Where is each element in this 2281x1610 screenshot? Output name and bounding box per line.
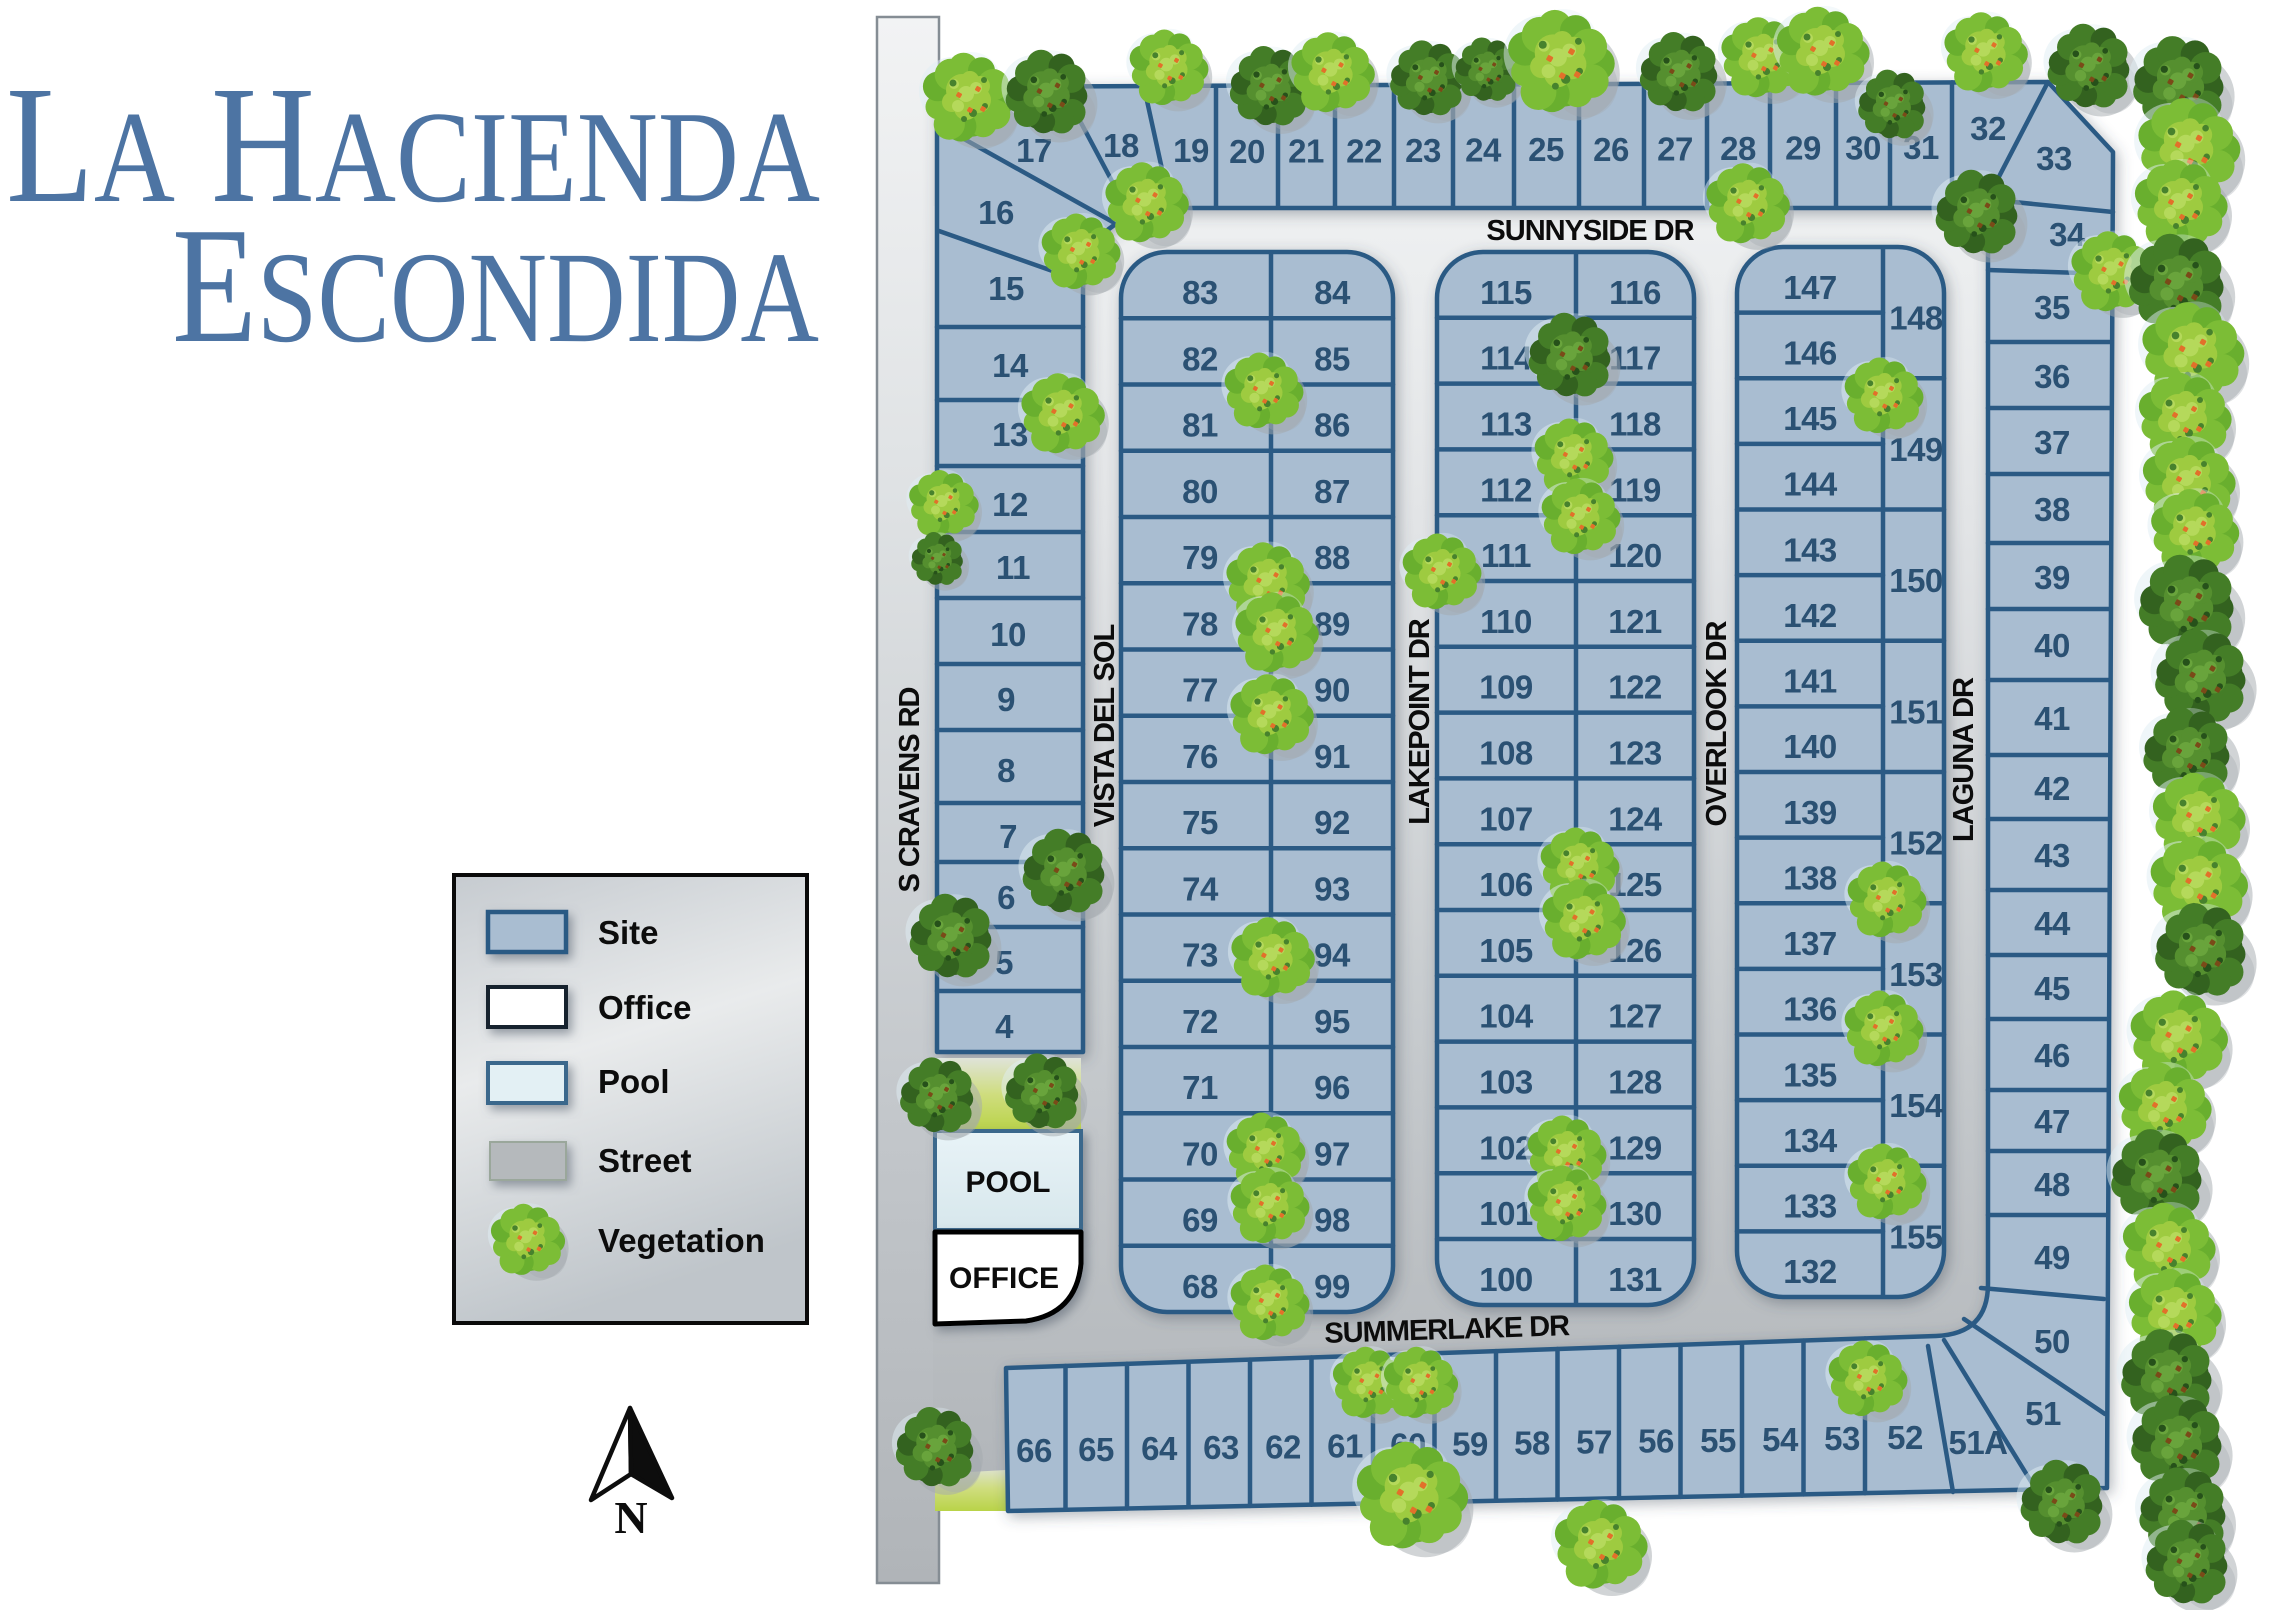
svg-text:123: 123 bbox=[1608, 735, 1662, 772]
svg-text:97: 97 bbox=[1314, 1135, 1350, 1172]
svg-text:54: 54 bbox=[1762, 1421, 1799, 1458]
svg-text:148: 148 bbox=[1889, 300, 1943, 337]
svg-text:S CRAVENS RD: S CRAVENS RD bbox=[894, 687, 926, 892]
svg-text:83: 83 bbox=[1182, 274, 1218, 311]
svg-text:141: 141 bbox=[1783, 663, 1837, 700]
svg-text:106: 106 bbox=[1479, 866, 1533, 903]
svg-text:115: 115 bbox=[1480, 274, 1532, 311]
svg-text:Pool: Pool bbox=[598, 1063, 670, 1100]
svg-text:82: 82 bbox=[1182, 340, 1218, 377]
svg-text:116: 116 bbox=[1609, 274, 1661, 311]
svg-text:80: 80 bbox=[1182, 473, 1218, 510]
svg-text:64: 64 bbox=[1141, 1430, 1178, 1467]
svg-text:38: 38 bbox=[2034, 491, 2070, 528]
svg-text:150: 150 bbox=[1889, 562, 1943, 599]
svg-text:22: 22 bbox=[1346, 132, 1382, 169]
svg-text:154: 154 bbox=[1889, 1087, 1944, 1124]
svg-text:Street: Street bbox=[598, 1142, 692, 1179]
svg-text:95: 95 bbox=[1314, 1003, 1350, 1040]
svg-text:42: 42 bbox=[2034, 770, 2070, 807]
svg-text:50: 50 bbox=[2034, 1323, 2070, 1360]
svg-text:140: 140 bbox=[1783, 728, 1837, 765]
svg-text:104: 104 bbox=[1479, 998, 1534, 1035]
svg-text:100: 100 bbox=[1479, 1261, 1533, 1298]
svg-text:143: 143 bbox=[1783, 531, 1837, 568]
svg-text:29: 29 bbox=[1785, 130, 1821, 167]
svg-text:58: 58 bbox=[1514, 1425, 1550, 1462]
svg-text:124: 124 bbox=[1608, 800, 1663, 837]
svg-text:113: 113 bbox=[1480, 406, 1532, 443]
svg-text:23: 23 bbox=[1405, 132, 1441, 169]
svg-text:N: N bbox=[614, 1492, 647, 1543]
svg-text:OVERLOOK DR: OVERLOOK DR bbox=[1701, 620, 1733, 826]
svg-text:4: 4 bbox=[995, 1008, 1014, 1045]
svg-text:47: 47 bbox=[2034, 1103, 2070, 1140]
svg-text:112: 112 bbox=[1480, 471, 1532, 508]
svg-text:25: 25 bbox=[1528, 131, 1564, 168]
svg-text:136: 136 bbox=[1783, 991, 1837, 1028]
svg-text:LAKEPOINT DR: LAKEPOINT DR bbox=[1404, 618, 1436, 825]
svg-text:70: 70 bbox=[1182, 1135, 1218, 1172]
svg-text:133: 133 bbox=[1783, 1188, 1837, 1225]
svg-text:128: 128 bbox=[1608, 1064, 1662, 1101]
svg-text:87: 87 bbox=[1314, 473, 1350, 510]
svg-text:91: 91 bbox=[1314, 738, 1350, 775]
svg-text:41: 41 bbox=[2034, 700, 2070, 737]
svg-text:51A: 51A bbox=[1948, 1424, 2007, 1461]
svg-text:19: 19 bbox=[1173, 132, 1209, 169]
svg-text:24: 24 bbox=[1465, 132, 1502, 169]
svg-text:134: 134 bbox=[1783, 1122, 1838, 1159]
svg-text:111: 111 bbox=[1481, 537, 1531, 574]
svg-text:85: 85 bbox=[1314, 340, 1350, 377]
svg-text:57: 57 bbox=[1576, 1424, 1612, 1461]
svg-text:153: 153 bbox=[1889, 956, 1943, 993]
svg-text:46: 46 bbox=[2034, 1037, 2070, 1074]
svg-text:119: 119 bbox=[1609, 471, 1661, 508]
svg-text:7: 7 bbox=[999, 818, 1017, 855]
svg-text:POOL: POOL bbox=[965, 1166, 1050, 1199]
svg-text:77: 77 bbox=[1182, 672, 1218, 709]
svg-text:36: 36 bbox=[2034, 358, 2070, 395]
svg-text:75: 75 bbox=[1182, 804, 1218, 841]
svg-text:79: 79 bbox=[1182, 539, 1218, 576]
svg-text:147: 147 bbox=[1783, 269, 1837, 306]
svg-text:33: 33 bbox=[2036, 140, 2072, 177]
svg-text:26: 26 bbox=[1593, 131, 1629, 168]
svg-text:43: 43 bbox=[2034, 837, 2070, 874]
svg-text:LAGUNA DR: LAGUNA DR bbox=[1948, 677, 1980, 842]
svg-text:68: 68 bbox=[1182, 1268, 1218, 1305]
svg-text:32: 32 bbox=[1970, 110, 2006, 147]
svg-text:49: 49 bbox=[2034, 1239, 2070, 1276]
svg-text:61: 61 bbox=[1327, 1427, 1363, 1464]
svg-text:14: 14 bbox=[992, 347, 1029, 384]
svg-text:39: 39 bbox=[2034, 559, 2070, 596]
svg-text:151: 151 bbox=[1889, 693, 1943, 730]
svg-text:90: 90 bbox=[1314, 672, 1350, 709]
svg-text:96: 96 bbox=[1314, 1069, 1350, 1106]
svg-text:86: 86 bbox=[1314, 407, 1350, 444]
svg-text:51: 51 bbox=[2025, 1395, 2061, 1432]
svg-text:37: 37 bbox=[2034, 424, 2070, 461]
svg-text:130: 130 bbox=[1608, 1195, 1662, 1232]
svg-text:8: 8 bbox=[997, 752, 1015, 789]
svg-text:66: 66 bbox=[1016, 1432, 1052, 1469]
svg-text:145: 145 bbox=[1783, 400, 1837, 437]
svg-text:52: 52 bbox=[1887, 1419, 1923, 1456]
svg-text:122: 122 bbox=[1608, 669, 1662, 706]
svg-text:63: 63 bbox=[1203, 1429, 1239, 1466]
svg-text:73: 73 bbox=[1182, 937, 1218, 974]
svg-text:11: 11 bbox=[996, 549, 1030, 586]
svg-text:69: 69 bbox=[1182, 1202, 1218, 1239]
svg-text:144: 144 bbox=[1783, 466, 1838, 503]
svg-text:118: 118 bbox=[1609, 406, 1661, 443]
svg-text:16: 16 bbox=[978, 194, 1014, 231]
svg-text:9: 9 bbox=[997, 681, 1015, 718]
svg-text:30: 30 bbox=[1845, 129, 1881, 166]
svg-text:127: 127 bbox=[1608, 998, 1662, 1035]
svg-text:15: 15 bbox=[988, 270, 1024, 307]
svg-text:18: 18 bbox=[1103, 127, 1139, 164]
svg-text:OFFICE: OFFICE bbox=[949, 1262, 1059, 1295]
svg-text:131: 131 bbox=[1608, 1261, 1662, 1298]
svg-text:40: 40 bbox=[2034, 627, 2070, 664]
svg-text:110: 110 bbox=[1480, 603, 1532, 640]
svg-text:35: 35 bbox=[2034, 289, 2070, 326]
svg-text:146: 146 bbox=[1783, 334, 1837, 371]
svg-text:Vegetation: Vegetation bbox=[598, 1222, 765, 1259]
svg-text:105: 105 bbox=[1479, 932, 1533, 969]
svg-text:93: 93 bbox=[1314, 870, 1350, 907]
svg-text:138: 138 bbox=[1783, 859, 1837, 896]
svg-text:152: 152 bbox=[1889, 825, 1943, 862]
svg-text:71: 71 bbox=[1182, 1069, 1218, 1106]
svg-text:78: 78 bbox=[1182, 605, 1218, 642]
svg-text:10: 10 bbox=[990, 616, 1026, 653]
svg-text:121: 121 bbox=[1608, 603, 1662, 640]
svg-text:107: 107 bbox=[1479, 800, 1533, 837]
svg-text:21: 21 bbox=[1288, 133, 1324, 170]
svg-text:Site: Site bbox=[598, 914, 659, 951]
svg-text:Office: Office bbox=[598, 989, 692, 1026]
svg-text:103: 103 bbox=[1479, 1064, 1533, 1101]
svg-text:74: 74 bbox=[1182, 870, 1219, 907]
svg-text:81: 81 bbox=[1182, 407, 1218, 444]
svg-text:VISTA DEL SOL: VISTA DEL SOL bbox=[1089, 625, 1121, 828]
svg-text:84: 84 bbox=[1314, 274, 1351, 311]
svg-text:135: 135 bbox=[1783, 1056, 1837, 1093]
svg-text:98: 98 bbox=[1314, 1202, 1350, 1239]
svg-text:12: 12 bbox=[992, 486, 1028, 523]
svg-text:132: 132 bbox=[1783, 1253, 1837, 1290]
svg-text:53: 53 bbox=[1824, 1420, 1860, 1457]
svg-text:108: 108 bbox=[1479, 735, 1533, 772]
svg-text:48: 48 bbox=[2034, 1166, 2070, 1203]
svg-text:SUNNYSIDE DR: SUNNYSIDE DR bbox=[1486, 215, 1694, 247]
svg-text:142: 142 bbox=[1783, 597, 1837, 634]
svg-text:20: 20 bbox=[1229, 133, 1265, 170]
svg-text:109: 109 bbox=[1479, 669, 1533, 706]
svg-text:99: 99 bbox=[1314, 1268, 1350, 1305]
svg-text:56: 56 bbox=[1638, 1423, 1674, 1460]
svg-text:76: 76 bbox=[1182, 738, 1218, 775]
svg-text:55: 55 bbox=[1700, 1422, 1736, 1459]
svg-text:65: 65 bbox=[1078, 1431, 1114, 1468]
svg-text:44: 44 bbox=[2034, 905, 2071, 942]
svg-text:59: 59 bbox=[1452, 1426, 1488, 1463]
svg-text:27: 27 bbox=[1657, 130, 1693, 167]
svg-text:137: 137 bbox=[1783, 925, 1837, 962]
svg-text:139: 139 bbox=[1783, 794, 1837, 831]
svg-text:28: 28 bbox=[1720, 130, 1756, 167]
svg-text:94: 94 bbox=[1314, 937, 1351, 974]
svg-text:88: 88 bbox=[1314, 539, 1350, 576]
svg-text:92: 92 bbox=[1314, 804, 1350, 841]
svg-text:45: 45 bbox=[2034, 970, 2070, 1007]
svg-text:6: 6 bbox=[997, 879, 1015, 916]
svg-text:72: 72 bbox=[1182, 1003, 1218, 1040]
svg-text:62: 62 bbox=[1265, 1428, 1301, 1465]
svg-text:129: 129 bbox=[1608, 1129, 1662, 1166]
